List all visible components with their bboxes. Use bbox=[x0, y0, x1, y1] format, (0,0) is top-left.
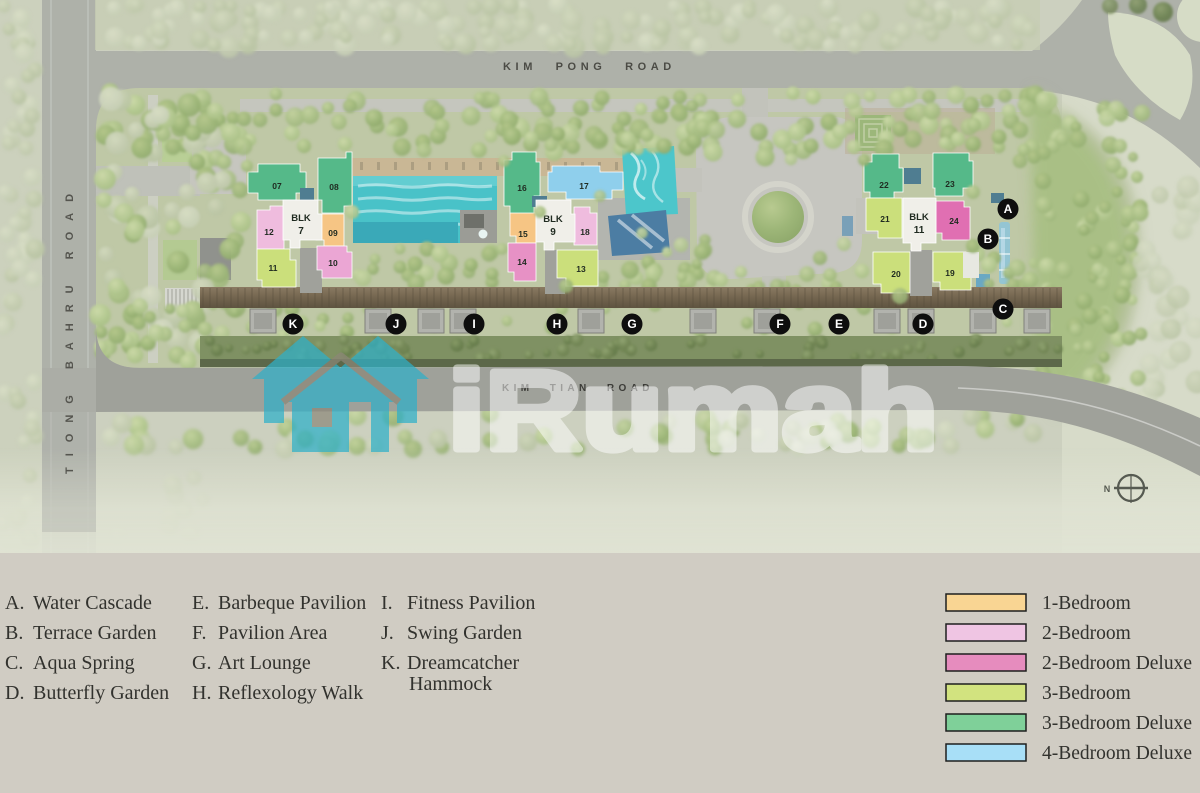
svg-text:18: 18 bbox=[580, 227, 590, 237]
svg-text:2-Bedroom Deluxe: 2-Bedroom Deluxe bbox=[1042, 653, 1192, 674]
svg-text:BLK: BLK bbox=[291, 213, 311, 224]
svg-text:Dreamcatcher: Dreamcatcher bbox=[407, 652, 519, 674]
svg-text:3-Bedroom: 3-Bedroom bbox=[1042, 683, 1131, 704]
svg-text:B: B bbox=[984, 232, 993, 246]
svg-text:H: H bbox=[553, 317, 562, 331]
svg-text:4-Bedroom Deluxe: 4-Bedroom Deluxe bbox=[1042, 743, 1192, 764]
svg-text:D.: D. bbox=[5, 682, 24, 704]
svg-text:C: C bbox=[999, 302, 1008, 316]
svg-text:07: 07 bbox=[272, 181, 282, 191]
svg-text:D: D bbox=[919, 317, 928, 331]
svg-text:09: 09 bbox=[328, 228, 338, 238]
svg-text:13: 13 bbox=[576, 264, 586, 274]
svg-text:H.: H. bbox=[192, 682, 211, 704]
svg-text:G: G bbox=[627, 317, 636, 331]
svg-text:Swing Garden: Swing Garden bbox=[407, 622, 522, 644]
svg-text:Art Lounge: Art Lounge bbox=[218, 652, 311, 674]
svg-text:BLK: BLK bbox=[543, 214, 563, 225]
svg-text:J.: J. bbox=[381, 622, 394, 644]
svg-text:15: 15 bbox=[518, 229, 528, 239]
svg-text:iRumah: iRumah bbox=[448, 348, 938, 473]
svg-text:20: 20 bbox=[891, 269, 901, 279]
svg-text:Aqua Spring: Aqua Spring bbox=[33, 652, 135, 674]
svg-text:F: F bbox=[776, 317, 783, 331]
svg-text:2-Bedroom: 2-Bedroom bbox=[1042, 623, 1131, 644]
svg-text:I.: I. bbox=[381, 592, 393, 614]
svg-text:A: A bbox=[1004, 202, 1013, 216]
svg-text:1-Bedroom: 1-Bedroom bbox=[1042, 593, 1131, 614]
svg-text:11: 11 bbox=[914, 225, 925, 236]
svg-text:10: 10 bbox=[328, 258, 338, 268]
svg-text:Fitness Pavilion: Fitness Pavilion bbox=[407, 592, 535, 614]
svg-text:BLK: BLK bbox=[909, 212, 929, 223]
svg-text:E.: E. bbox=[192, 592, 209, 614]
svg-text:19: 19 bbox=[945, 268, 955, 278]
svg-text:G.: G. bbox=[192, 652, 211, 674]
svg-text:F.: F. bbox=[192, 622, 207, 644]
svg-text:17: 17 bbox=[579, 181, 589, 191]
svg-text:Hammock: Hammock bbox=[409, 673, 492, 695]
svg-text:K: K bbox=[289, 317, 298, 331]
svg-text:22: 22 bbox=[879, 180, 889, 190]
svg-text:Terrace Garden: Terrace Garden bbox=[33, 622, 157, 644]
svg-text:7: 7 bbox=[298, 226, 304, 237]
svg-text:12: 12 bbox=[264, 227, 274, 237]
svg-text:Butterfly Garden: Butterfly Garden bbox=[33, 682, 169, 704]
svg-text:J: J bbox=[393, 317, 400, 331]
svg-text:08: 08 bbox=[329, 182, 339, 192]
svg-text:E: E bbox=[835, 317, 843, 331]
svg-text:A.: A. bbox=[5, 592, 24, 614]
svg-text:14: 14 bbox=[517, 257, 527, 267]
svg-text:23: 23 bbox=[945, 179, 955, 189]
svg-text:B.: B. bbox=[5, 622, 23, 644]
svg-text:9: 9 bbox=[550, 227, 556, 238]
svg-text:3-Bedroom Deluxe: 3-Bedroom Deluxe bbox=[1042, 713, 1192, 734]
svg-text:24: 24 bbox=[949, 216, 959, 226]
svg-text:11: 11 bbox=[269, 263, 278, 273]
svg-text:Pavilion Area: Pavilion Area bbox=[218, 622, 328, 644]
svg-text:C.: C. bbox=[5, 652, 23, 674]
svg-text:16: 16 bbox=[517, 183, 527, 193]
svg-text:N: N bbox=[1104, 484, 1111, 494]
svg-text:Barbeque Pavilion: Barbeque Pavilion bbox=[218, 592, 366, 614]
svg-text:KIM PONG ROAD: KIM PONG ROAD bbox=[503, 61, 676, 73]
svg-text:K.: K. bbox=[381, 652, 400, 674]
svg-text:21: 21 bbox=[880, 214, 890, 224]
svg-text:TIONG BAHRU ROAD: TIONG BAHRU ROAD bbox=[64, 183, 76, 474]
svg-text:I: I bbox=[472, 317, 475, 331]
svg-text:Reflexology Walk: Reflexology Walk bbox=[218, 682, 363, 704]
svg-text:Water Cascade: Water Cascade bbox=[33, 592, 152, 614]
